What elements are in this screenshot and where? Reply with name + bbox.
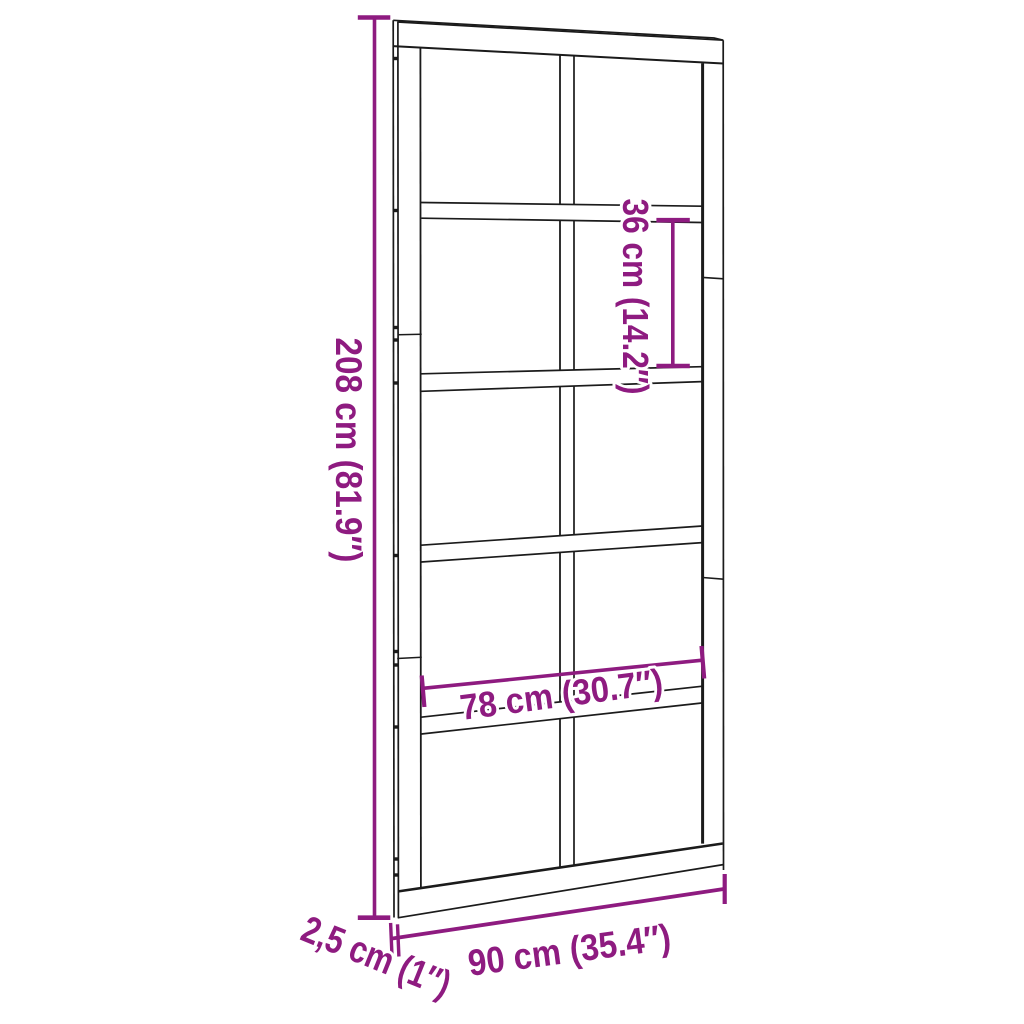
svg-text:2,5 cm (1″): 2,5 cm (1″)	[295, 908, 456, 1006]
svg-text:90 cm (35.4″): 90 cm (35.4″)	[466, 916, 674, 983]
svg-text:208 cm (81.9″): 208 cm (81.9″)	[328, 338, 369, 563]
svg-text:36 cm (14.2″): 36 cm (14.2″)	[615, 199, 656, 395]
